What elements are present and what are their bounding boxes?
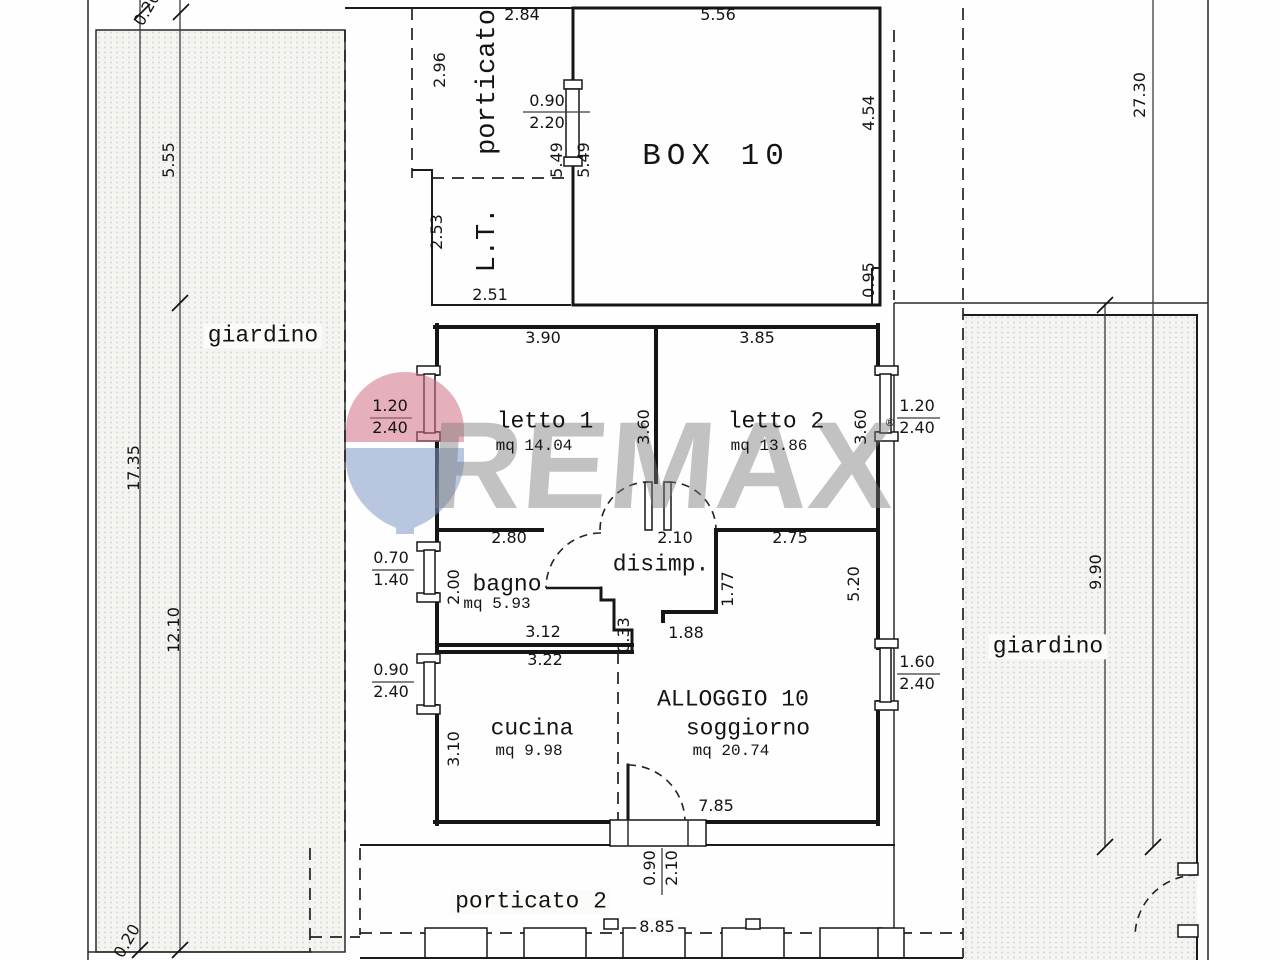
dim-0-95: 0.95 xyxy=(860,262,878,298)
dim-0-33: 0.33 xyxy=(615,617,633,653)
dim-1-77: 1.77 xyxy=(719,571,737,607)
dim-2-40-left: 2.40 xyxy=(372,419,408,437)
dim-17-35: 17.35 xyxy=(125,445,143,491)
dim-27-30: 27.30 xyxy=(1131,72,1149,118)
dim-3-60-left: 3.60 xyxy=(635,409,653,445)
dim-3-85: 3.85 xyxy=(739,329,775,347)
area-soggiorno: mq 20.74 xyxy=(693,743,770,761)
room-label-disimp: disimp. xyxy=(613,552,710,577)
dim-2-80: 2.80 xyxy=(491,529,527,547)
dim-2-75: 2.75 xyxy=(772,529,808,547)
room-label-giardino-left: giardino xyxy=(204,323,322,348)
dim-2-10-disimp: 2.10 xyxy=(657,529,693,547)
dim-1-20-right: 1.20 xyxy=(899,397,935,415)
dim-3-60-right: 3.60 xyxy=(852,409,870,445)
dim-0-90-box-door: 0.90 xyxy=(529,92,565,110)
dim-5-49-b: 5.49 xyxy=(575,142,593,178)
dim-1-60: 1.60 xyxy=(899,653,935,671)
room-label-cucina: cucina xyxy=(491,716,574,741)
dim-3-10: 3.10 xyxy=(445,731,463,767)
dim-2-20-box-door: 2.20 xyxy=(529,114,565,132)
room-label-letto-2: letto 2 xyxy=(728,409,825,434)
area-cucina: mq 9.98 xyxy=(495,743,562,761)
dim-3-12: 3.12 xyxy=(525,623,561,641)
room-label-bagno: bagno xyxy=(472,572,541,597)
dim-9-90: 9.90 xyxy=(1087,554,1105,590)
floorplan-linework xyxy=(0,0,1280,960)
dim-1-88: 1.88 xyxy=(668,624,704,642)
dim-0-90-main-door: 0.90 xyxy=(641,850,659,886)
room-label-porticato-2: porticato 2 xyxy=(451,889,611,914)
dim-3-22: 3.22 xyxy=(527,651,563,669)
dim-8-85: 8.85 xyxy=(636,918,678,936)
dim-2-96: 2.96 xyxy=(431,52,449,88)
dim-2-40-cucina: 2.40 xyxy=(373,683,409,701)
dim-2-84: 2.84 xyxy=(504,6,540,24)
dim-2-51: 2.51 xyxy=(472,286,508,304)
dim-1-20-left: 1.20 xyxy=(372,397,408,415)
registered-mark: ® xyxy=(885,417,896,429)
dim-0-70: 0.70 xyxy=(373,549,409,567)
dim-7-85: 7.85 xyxy=(698,797,734,815)
dim-2-40-soggiorno: 2.40 xyxy=(899,675,935,693)
area-letto-1: mq 14.04 xyxy=(496,438,573,456)
dim-5-55: 5.55 xyxy=(160,142,178,178)
room-label-porticato: porticato xyxy=(474,9,504,155)
area-bagno: mq 5.93 xyxy=(463,596,530,614)
unit-label-alloggio-10: ALLOGGIO 10 xyxy=(657,687,809,712)
dim-2-00: 2.00 xyxy=(445,569,463,605)
room-label-soggiorno: soggiorno xyxy=(686,716,810,741)
dim-12-10: 12.10 xyxy=(165,607,183,653)
room-label-letto-1: letto 1 xyxy=(497,409,594,434)
room-label-giardino-right: giardino xyxy=(989,634,1107,659)
room-label-lt: L.T. xyxy=(474,208,504,273)
dim-1-40: 1.40 xyxy=(373,571,409,589)
dim-0-90-cucina: 0.90 xyxy=(373,661,409,679)
dim-4-54: 4.54 xyxy=(860,95,878,131)
room-label-box-10: BOX 10 xyxy=(642,140,790,174)
dim-5-49-a: 5.49 xyxy=(548,142,566,178)
dim-5-56: 5.56 xyxy=(700,6,736,24)
dim-5-20: 5.20 xyxy=(845,566,863,602)
dim-3-90: 3.90 xyxy=(525,329,561,347)
area-letto-2: mq 13.86 xyxy=(731,438,808,456)
floorplan-page: REMAX porticato2.845.562.960.902.205.495… xyxy=(0,0,1280,960)
dim-2-53: 2.53 xyxy=(428,214,446,250)
dim-2-10-main-door: 2.10 xyxy=(663,850,681,886)
dim-2-40-right: 2.40 xyxy=(899,419,935,437)
